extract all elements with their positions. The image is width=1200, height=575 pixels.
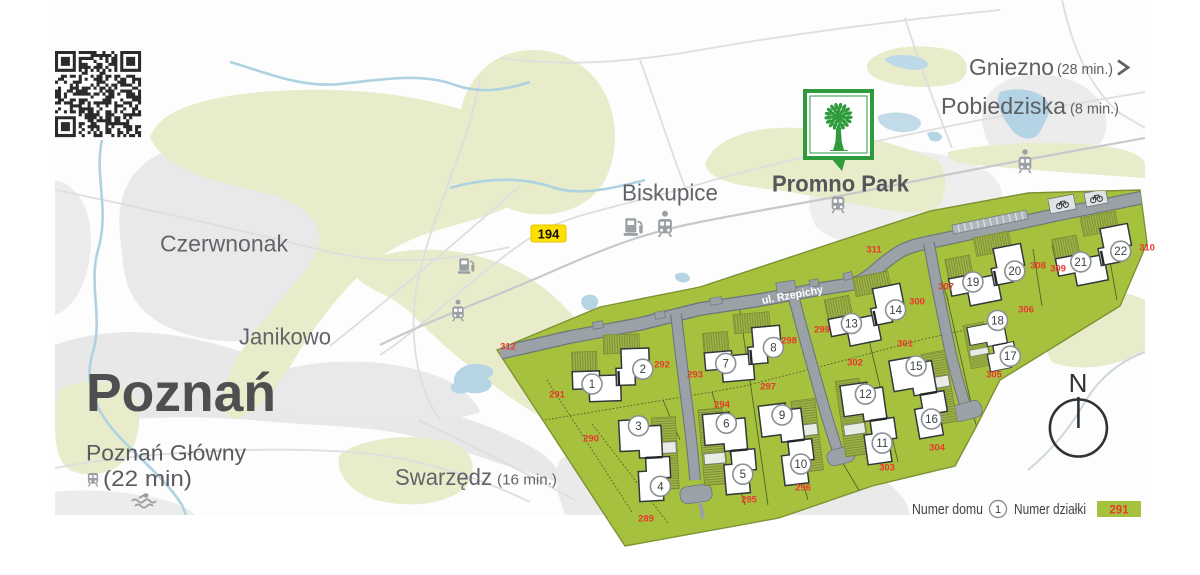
svg-text:13: 13 [845,319,858,331]
svg-text:299: 299 [814,325,830,336]
svg-text:21: 21 [1074,257,1087,269]
svg-text:9: 9 [779,410,785,422]
svg-text:16: 16 [925,414,938,426]
svg-text:310: 310 [1139,243,1155,254]
svg-text:297: 297 [760,382,776,393]
svg-text:298: 298 [781,336,797,347]
svg-text:292: 292 [654,360,670,371]
svg-text:301: 301 [897,339,914,350]
svg-text:5: 5 [740,469,746,481]
svg-text:Pobiedziska: Pobiedziska [941,93,1067,119]
svg-text:20: 20 [1008,266,1021,278]
svg-text:Gniezno: Gniezno [969,54,1054,80]
svg-text:307: 307 [938,282,954,293]
svg-text:8: 8 [770,343,776,355]
svg-text:19: 19 [967,277,980,289]
svg-text:Poznań: Poznań [86,363,276,423]
svg-text:17: 17 [1004,351,1017,363]
svg-text:(28 min.): (28 min.) [1057,61,1113,78]
svg-text:Swarzędz: Swarzędz [395,464,492,490]
svg-text:306: 306 [1018,305,1034,316]
svg-text:10: 10 [794,459,807,471]
svg-text:291: 291 [549,390,566,401]
svg-text:294: 294 [714,400,731,411]
svg-text:293: 293 [687,370,703,381]
svg-text:Janikowo: Janikowo [239,324,331,350]
svg-text:290: 290 [583,434,599,445]
svg-text:(16 min.): (16 min.) [497,473,557,489]
svg-text:Promno Park: Promno Park [772,171,909,197]
svg-text:194: 194 [538,227,560,242]
svg-text:Czerwnonak: Czerwnonak [160,231,288,257]
svg-text:(8 min.): (8 min.) [1070,101,1119,118]
svg-text:Biskupice: Biskupice [622,180,718,206]
svg-text:7: 7 [722,358,728,370]
svg-text:312: 312 [500,342,516,353]
svg-text:Poznań Główny: Poznań Główny [86,441,246,466]
svg-text:4: 4 [657,481,664,493]
svg-text:Numer działki: Numer działki [1014,502,1086,518]
svg-text:303: 303 [879,463,895,474]
svg-text:(22 min): (22 min) [103,466,192,491]
svg-text:6: 6 [723,418,729,430]
svg-text:305: 305 [986,370,1003,381]
svg-text:296: 296 [795,483,811,494]
svg-text:295: 295 [741,495,758,506]
svg-text:289: 289 [638,514,654,525]
svg-text:Numer domu: Numer domu [912,502,983,518]
svg-text:3: 3 [635,421,641,433]
svg-text:1: 1 [589,379,595,391]
svg-text:11: 11 [876,438,888,450]
svg-text:22: 22 [1114,246,1127,258]
svg-text:2: 2 [640,364,646,376]
svg-text:300: 300 [909,297,925,308]
svg-text:1: 1 [995,504,1001,516]
svg-text:12: 12 [859,389,872,401]
svg-text:308: 308 [1030,261,1046,272]
svg-text:311: 311 [866,245,882,256]
svg-text:18: 18 [991,315,1004,327]
svg-text:291: 291 [1109,505,1129,517]
svg-text:15: 15 [910,361,923,373]
svg-text:304: 304 [929,443,946,454]
svg-text:14: 14 [889,305,902,317]
svg-text:N: N [1069,368,1088,398]
svg-text:309: 309 [1050,264,1066,275]
svg-text:302: 302 [847,358,863,369]
